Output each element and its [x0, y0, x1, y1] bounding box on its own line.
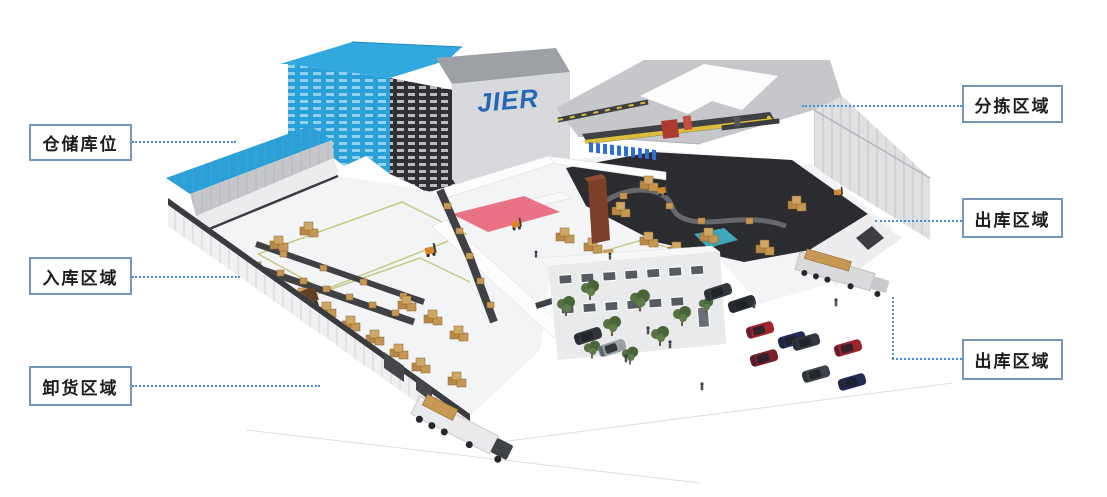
callout-label: 卸货区域 — [43, 374, 119, 399]
leader-line-sorting — [802, 105, 962, 107]
callout-outbound-area-upper: 出库区域 — [962, 198, 1063, 238]
callout-label: 出库区域 — [975, 347, 1051, 372]
callout-inbound-area: 入库区域 — [29, 257, 132, 295]
callout-label: 分拣区域 — [975, 92, 1051, 117]
leader-line-outbound-upper — [875, 220, 962, 222]
callout-sorting-area: 分拣区域 — [962, 85, 1063, 123]
leader-line-outbound-lower — [892, 358, 962, 360]
callout-outbound-area-lower: 出库区域 — [962, 339, 1063, 380]
callout-label: 入库区域 — [43, 264, 119, 289]
figure-warehouse-overview: JIER — [0, 0, 1107, 497]
callout-label: 仓储库位 — [43, 130, 119, 155]
callout-unloading-area: 卸货区域 — [29, 366, 132, 406]
ground-edge-lines — [246, 383, 952, 483]
leader-line-inbound — [132, 276, 240, 278]
north-roof — [556, 60, 842, 144]
leader-line-outbound-lower-vertical — [892, 297, 894, 359]
warehouse-3d-illustration: JIER — [0, 0, 1107, 497]
leader-line-unloading — [132, 385, 320, 387]
callout-label: 出库区域 — [975, 206, 1051, 231]
jier-logo: JIER — [476, 83, 540, 118]
callout-storage-area: 仓储库位 — [29, 124, 132, 161]
leader-line-storage — [132, 141, 236, 143]
